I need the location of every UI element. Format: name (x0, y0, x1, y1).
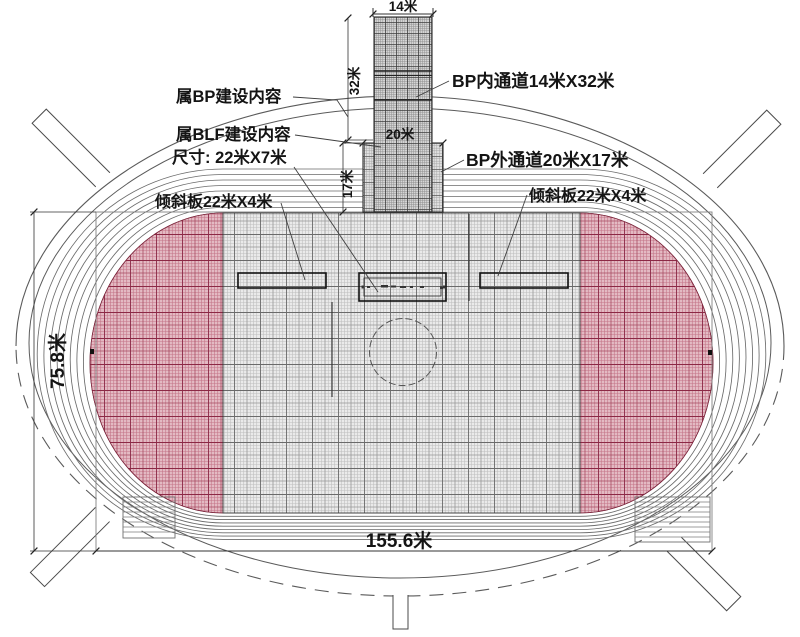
red-zone-right (580, 213, 713, 513)
dim-outer-corridor-length: 17米 (339, 169, 355, 198)
walkway-bottom-right (667, 537, 741, 611)
label-blf-size: 尺寸: 22米X7米 (172, 147, 287, 167)
leader-blf-scope (295, 135, 381, 147)
walkway-bottom-left (30, 507, 109, 586)
label-ramp-left: 倾斜板22米X4米 (154, 192, 273, 211)
dim-inner-corridor-length: 32米 (346, 66, 362, 95)
dim-field-width: 155.6米 (366, 529, 434, 552)
bp-inner-corridor-tower (374, 17, 432, 212)
stadium-plan-drawing: 属BP建设内容 属BLF建设内容 尺寸: 22米X7米 倾斜板22米X4米 BP… (0, 0, 800, 637)
field-marker-left (90, 349, 94, 354)
walkway-top-right (703, 110, 781, 188)
construction-plan: 属BP建设内容 属BLF建设内容 尺寸: 22米X7米 倾斜板22米X4米 BP… (0, 0, 800, 637)
leader-bp-outer (441, 160, 464, 172)
label-bp-outer-corridor: BP外通道20米X17米 (466, 150, 629, 170)
red-zone-left (90, 213, 223, 513)
label-bp-inner-corridor: BP内通道14米X32米 (452, 71, 615, 91)
field-hatched-area (223, 213, 580, 513)
dim-inner-corridor-width: 14米 (389, 0, 418, 14)
dim-field-height: 75.8米 (46, 332, 69, 389)
label-bp-scope: 属BP建设内容 (176, 86, 282, 106)
dim-outer-corridor-width: 20米 (386, 126, 415, 142)
walkway-bottom-center (393, 595, 408, 629)
walkway-top-left (32, 109, 110, 187)
label-ramp-right: 倾斜板22米X4米 (528, 186, 647, 205)
leader-bp-scope (293, 97, 348, 117)
label-blf-scope: 属BLF建设内容 (176, 124, 291, 144)
field-marker-right (708, 350, 712, 355)
